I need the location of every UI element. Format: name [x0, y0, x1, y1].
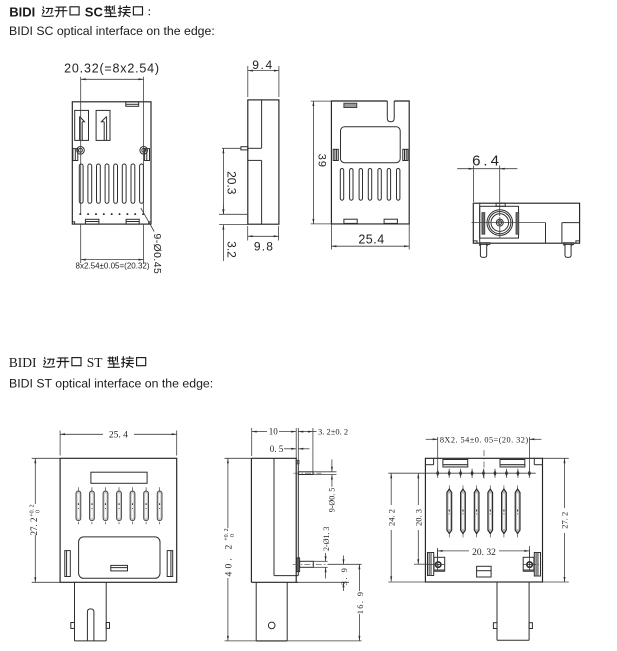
svg-text:SC: SC [85, 5, 104, 20]
svg-text:BIDI: BIDI [9, 355, 37, 370]
svg-text:3.2: 3.2 [225, 241, 239, 258]
svg-text:27. 2: 27. 2 [559, 512, 569, 529]
svg-text:0: 0 [35, 510, 41, 513]
svg-text:20. 3: 20. 3 [414, 509, 424, 526]
svg-text:27. 2: 27. 2 [29, 518, 39, 536]
svg-text:20.32(=8x2.54): 20.32(=8x2.54) [64, 61, 160, 75]
svg-text:8x2.54±0.05=(20.32): 8x2.54±0.05=(20.32) [76, 261, 150, 270]
svg-text:40. 2: 40. 2 [224, 542, 234, 577]
svg-text:ST: ST [87, 355, 104, 370]
svg-text:10: 10 [269, 427, 279, 437]
svg-text:9.4: 9.4 [252, 58, 273, 72]
svg-text:25.4: 25.4 [358, 233, 384, 247]
svg-text:0: 0 [230, 534, 236, 537]
svg-text:24. 2: 24. 2 [387, 509, 397, 526]
svg-text:3. 9: 3. 9 [339, 567, 349, 586]
svg-text:BIDI ST optical interface on t: BIDI ST optical interface on the edge: [9, 377, 213, 391]
svg-text:16. 9: 16. 9 [355, 591, 365, 615]
svg-text:BIDI SC optical interface on t: BIDI SC optical interface on the edge: [9, 24, 215, 38]
svg-text:25. 4: 25. 4 [109, 431, 128, 441]
svg-text:8X2. 54±0. 05=(20. 32): 8X2. 54±0. 05=(20. 32) [440, 436, 529, 445]
svg-text:9-Ø0. 5: 9-Ø0. 5 [328, 488, 337, 512]
svg-text:BIDI: BIDI [9, 5, 35, 20]
svg-text:0. 5: 0. 5 [270, 444, 284, 454]
svg-text:9.8: 9.8 [254, 240, 274, 254]
svg-text:6.4: 6.4 [472, 152, 502, 169]
svg-text:2-Ø1. 3: 2-Ø1. 3 [322, 527, 331, 551]
svg-text:9-Ø0.45: 9-Ø0.45 [151, 234, 162, 275]
svg-text:20.3: 20.3 [224, 171, 238, 195]
svg-text:3. 2±0. 2: 3. 2±0. 2 [318, 427, 348, 437]
svg-text:39: 39 [316, 154, 328, 168]
svg-text:20. 32: 20. 32 [472, 548, 496, 558]
